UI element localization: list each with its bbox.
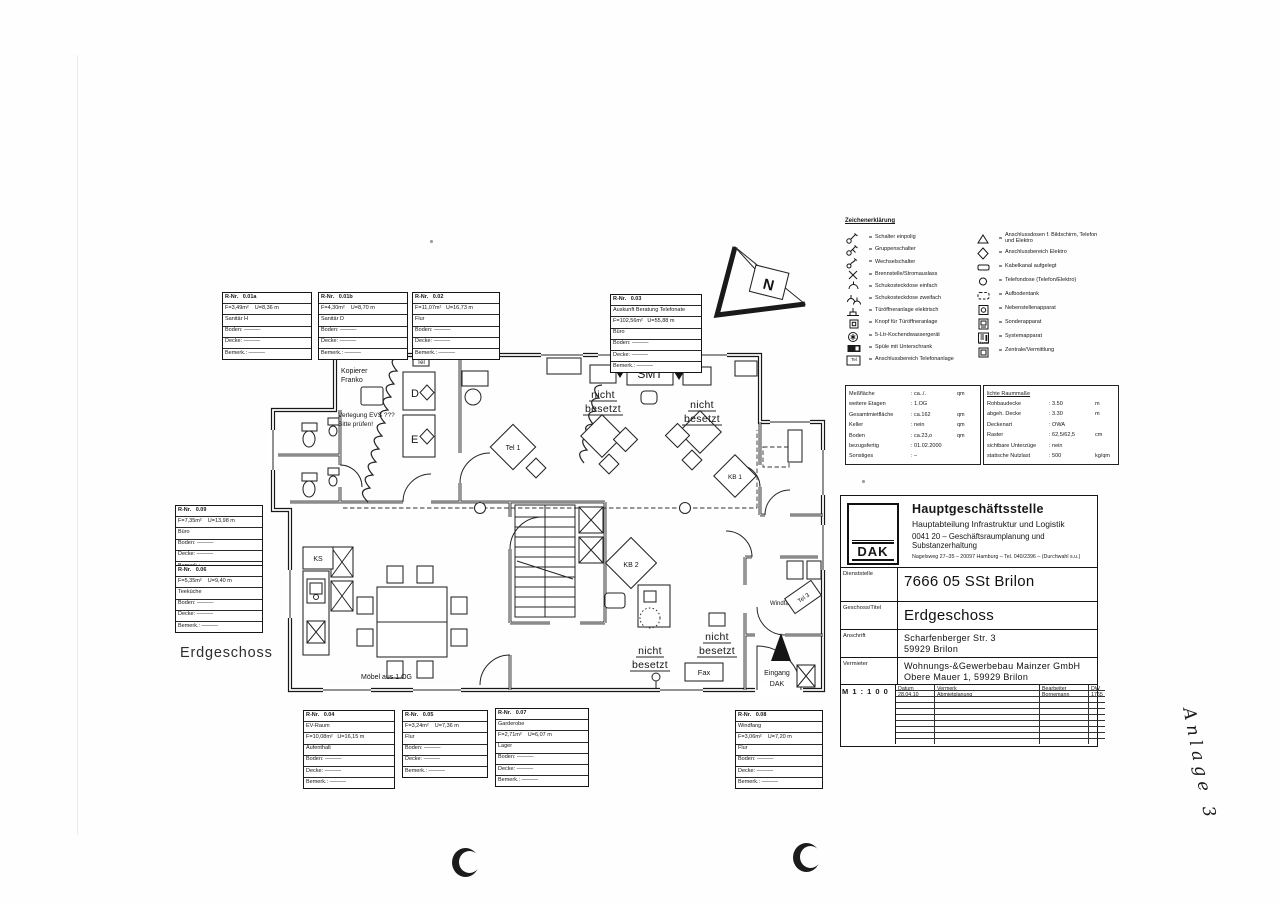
room-box-row: Decke: ——— xyxy=(319,338,407,349)
outer-walls xyxy=(273,355,823,690)
title-block: DAK Hauptgeschäftsstelle Hauptabteilung … xyxy=(840,495,1098,747)
paper-edge-artifact xyxy=(77,55,78,835)
room-box-row: Garderobe xyxy=(496,720,588,731)
org-address: Nagelsweg 27–35 – 20097 Hamburg – Tel. 0… xyxy=(912,554,1093,560)
field-label: Geschoss/Titel xyxy=(841,602,898,629)
room-box-row: Sanitär H xyxy=(223,315,311,326)
spec-tables: Meßfläche: ca../.qmweitere Etagen: 1.OGG… xyxy=(845,385,1119,465)
legend-item: =Anschlussdosen f. Bildschirm, Telefon u… xyxy=(975,232,1105,246)
legend-item-label: Aufbodentank xyxy=(1005,292,1039,298)
room-box-row: Boden: ——— xyxy=(176,540,262,551)
revision-table: Datum Vermerk Bearbeiter DW 28.04.10 Abm… xyxy=(896,685,1105,744)
tel1-desk: Tel 1 xyxy=(490,424,546,478)
room-box-row: Bemerk.: ——— xyxy=(319,349,407,359)
legend-column-left: =Schalter einpolig=Gruppenschalter=Wechs… xyxy=(845,232,975,366)
room-box-row: R-Nr. 0.05 xyxy=(403,711,487,722)
legend-item-label: Kabelkanal aufgelegt xyxy=(1005,264,1056,270)
room-box-row: Bemerk.: ——— xyxy=(611,362,701,372)
svg-text:besetzt: besetzt xyxy=(699,645,735,657)
spec-row: weitere Etagen: 1.OG xyxy=(849,399,977,409)
legend-item: =Kabelkanal aufgelegt xyxy=(975,260,1105,274)
connection-closets: Tel D E xyxy=(403,356,435,457)
nicht-besetzt-label: nicht besetzt xyxy=(630,645,670,671)
room-box-row: R-Nr. 0.01b xyxy=(319,293,407,304)
room-box-row: EV-Raum xyxy=(304,722,394,733)
landlord-value: Wohnungs-&Gewerbebau Mainzer GmbH Obere … xyxy=(898,658,1097,684)
spec-row: Deckenart: OWA xyxy=(987,420,1115,430)
room-box-row: Bemerk.: ——— xyxy=(403,767,487,777)
room-info-box: R-Nr. 0.07GarderobeF=2,71m² U=6,07 mLage… xyxy=(495,708,589,787)
room-box-row: Boden: ——— xyxy=(403,745,487,756)
room-box-row: R-Nr. 0.03 xyxy=(611,295,701,306)
svg-text:nicht: nicht xyxy=(591,389,615,401)
room-box-row: F=2,71m² U=6,07 m xyxy=(496,731,588,742)
room-box-row: Boden: ——— xyxy=(611,340,701,351)
legend-item: Zentr.=Zentrale/Vermittlung xyxy=(975,344,1105,358)
scan-speck xyxy=(862,480,865,483)
kb2-label: KB 2 xyxy=(623,562,638,569)
legend-item: =5-Ltr-Kochendwassergerät xyxy=(845,330,975,342)
room-dimension-spec-table: lichte RaummaßeRohbaudecke: 3.50mabgeh. … xyxy=(983,385,1119,465)
area-spec-table: Meßfläche: ca../.qmweitere Etagen: 1.OGG… xyxy=(845,385,981,465)
room-box-row: Flur xyxy=(736,745,822,756)
room-box-row: R-Nr. 0.07 xyxy=(496,709,588,720)
legend-item-label: Türöffneranlage elektrisch xyxy=(875,308,939,314)
legend-item-label: Schalter einpolig xyxy=(875,235,916,241)
address-value: Scharfenberger Str. 3 59929 Brilon xyxy=(898,630,1097,657)
special-phone-icon xyxy=(975,316,993,330)
room-box-row: Teeküche xyxy=(176,588,262,599)
room-info-box: R-Nr. 0.05F=3,24m² U=7,36 mFlurBoden: ——… xyxy=(402,710,488,778)
legend-item: =Gruppenschalter xyxy=(845,244,975,256)
legend-item: Tel=Anschlussbereich Telefonanlage xyxy=(845,354,975,366)
tel-marker: Tel xyxy=(417,360,425,366)
room-box-row: F=11,07m² U=16,73 m xyxy=(413,304,499,315)
floor-tank-icon xyxy=(975,288,993,302)
legend-item-label: Schukosteckdose zweifach xyxy=(875,296,941,302)
room-box-row: Windfang xyxy=(736,722,822,733)
legend-item: =Nebenstellenapparat xyxy=(975,302,1105,316)
room-box-row: Auskunft Beratung Telefonate xyxy=(611,306,701,317)
room-box-row: Boden: ——— xyxy=(413,327,499,338)
svg-text:Franko: Franko xyxy=(341,377,363,384)
furniture-note: Möbel aus 1.OG xyxy=(361,674,412,681)
phone-socket-icon xyxy=(975,274,993,288)
room-box-row: Decke: ——— xyxy=(611,351,701,362)
legend-item: =Telefondose (Telefon/Elektro) xyxy=(975,274,1105,288)
svg-text:besetzt: besetzt xyxy=(585,403,621,415)
kb1-desk: KB 1 xyxy=(714,455,756,497)
station-id: 7666 05 SSt Brilon xyxy=(898,568,1097,601)
room-box-row: Decke: ——— xyxy=(176,611,262,622)
room-box-row: Decke: ——— xyxy=(413,338,499,349)
legend-item-label: Sonderapparat xyxy=(1005,320,1041,326)
legend-item: =Sonderapparat xyxy=(975,316,1105,330)
copier-label: Kopierer xyxy=(341,368,368,375)
svg-text:DAK: DAK xyxy=(770,681,785,688)
room-box-row: F=4,30m² U=8,70 m xyxy=(319,304,407,315)
room-box-row: R-Nr. 0.08 xyxy=(736,711,822,722)
revision-row-empty xyxy=(896,739,1105,744)
room-box-row: R-Nr. 0.09 xyxy=(176,506,262,517)
svg-text:E: E xyxy=(411,434,418,446)
room-box-row: F=102,56m² U=55,88 m xyxy=(611,317,701,328)
room-box-row: Flur xyxy=(413,315,499,326)
room-box-row: Flur xyxy=(403,733,487,744)
kitchenette: KS xyxy=(303,547,333,655)
legend-item: =Brennstelle/Stromauslass xyxy=(845,269,975,281)
entrance-label: Eingang xyxy=(764,670,790,677)
spec-row: Raster: 62,5/62,5cm xyxy=(987,430,1115,440)
spec-row: abgeh. Decke: 3.30m xyxy=(987,409,1115,419)
scale-label: M 1 : 1 0 0 xyxy=(841,685,896,744)
room-box-row: F=7,35m² U=13,98 m xyxy=(176,517,262,528)
room-info-box: R-Nr. 0.06F=5,35m² U=9,40 mTeekücheBoden… xyxy=(175,565,263,633)
scanned-floorplan-page: Kopierer Franko Verlegung EVS ??? Bitte … xyxy=(0,0,1279,904)
svg-text:nicht: nicht xyxy=(705,631,729,643)
legend-column-right: =Anschlussdosen f. Bildschirm, Telefon u… xyxy=(975,232,1105,366)
room-info-box: R-Nr. 0.03Auskunft Beratung TelefonateF=… xyxy=(610,294,702,373)
spec-row: Boden: ca.23,oqm xyxy=(849,431,977,441)
conference-table: Möbel aus 1.OG xyxy=(357,566,467,681)
room-box-row: R-Nr. 0.06 xyxy=(176,566,262,577)
room-box-row: Bemerk.: ——— xyxy=(413,349,499,359)
legend-item: =Schalter einpolig xyxy=(845,232,975,244)
room-box-row: Decke: ——— xyxy=(403,756,487,767)
handwritten-annotation: Anlage 3 xyxy=(1178,706,1220,824)
room-box-row: Boden: ——— xyxy=(304,756,394,767)
room-box-row: Büro xyxy=(176,528,262,539)
spec-row: Gesamtmietfläche: ca.162qm xyxy=(849,410,977,420)
spec-row: Keller: neinqm xyxy=(849,420,977,430)
extension-phone-icon xyxy=(975,302,993,316)
svg-text:D: D xyxy=(411,388,419,400)
room-box-row: Boden: ——— xyxy=(496,754,588,765)
title-block-header: DAK Hauptgeschäftsstelle Hauptabteilung … xyxy=(841,496,1097,568)
legend-item-label: Anschlussbereich Telefonanlage xyxy=(875,357,954,363)
legend-item-label: Anschlussbereich Elektro xyxy=(1005,250,1067,256)
legend-item-label: Schukosteckdose einfach xyxy=(875,284,937,290)
sanitary-fixtures xyxy=(302,418,339,497)
spec-table-title: lichte Raummaße xyxy=(987,389,1115,399)
binder-ring-artifact xyxy=(793,843,820,872)
legend-item: =Aufbodentank xyxy=(975,288,1105,302)
org-name: Hauptgeschäftsstelle xyxy=(912,502,1093,516)
fax-label: Fax xyxy=(698,668,711,677)
entrance: Eingang DAK xyxy=(764,633,791,688)
room-box-row: Lager xyxy=(496,743,588,754)
room-box-row: Decke: ——— xyxy=(304,767,394,778)
org-department: Hauptabteilung Infrastruktur und Logisti… xyxy=(912,519,1093,529)
pbx-icon: Zentr. xyxy=(975,344,993,358)
field-label: Anschrift xyxy=(841,630,898,657)
room-info-box: R-Nr. 0.01bF=4,30m² U=8,70 mSanitär DBod… xyxy=(318,292,408,360)
interior-walls xyxy=(273,355,823,690)
room-box-row: Büro xyxy=(611,329,701,340)
room-box-row: Bemerk.: ——— xyxy=(223,349,311,359)
north-arrow: N xyxy=(717,247,805,315)
room-box-row: Decke: ——— xyxy=(223,338,311,349)
spec-row: bezugsfertig: 01.02.2000 xyxy=(849,441,977,451)
room-box-row: Boden: ——— xyxy=(736,756,822,767)
conn-triangle-icon xyxy=(975,232,993,246)
room-box-row: F=3,24m² U=7,36 m xyxy=(403,722,487,733)
svg-text:besetzt: besetzt xyxy=(632,659,668,671)
room-box-row: Boden: ——— xyxy=(176,600,262,611)
room-box-row: Bemerk.: ——— xyxy=(736,778,822,788)
legend-item: =Knopf für Türöffneranlage xyxy=(845,317,975,329)
room-box-row: Aufenthalt xyxy=(304,745,394,756)
room-info-box: R-Nr. 0.01aF=3,49m² U=8,36 mSanitär HBod… xyxy=(222,292,312,360)
svg-text:nicht: nicht xyxy=(690,399,714,411)
org-unit: 0041 20 – Geschäftsraumplanung und Subst… xyxy=(912,532,1093,550)
cabinets xyxy=(331,547,353,611)
cable-duct-icon xyxy=(975,260,993,274)
svg-text:nicht: nicht xyxy=(638,645,662,657)
room-box-row: Decke: ——— xyxy=(736,767,822,778)
legend-item-label: Systemapparat xyxy=(1005,334,1042,340)
legend-item: =Spüle mit Unterschrank xyxy=(845,342,975,354)
field-label: Vermieter xyxy=(841,658,898,684)
legend: Zeichenerklärung =Schalter einpolig=Grup… xyxy=(845,218,1107,366)
room-box-row: R-Nr. 0.02 xyxy=(413,293,499,304)
svg-text:Bitte prüfen!: Bitte prüfen! xyxy=(338,421,373,428)
floor-title: Erdgeschoss xyxy=(898,602,1097,629)
field-label: Dienststelle xyxy=(841,568,898,601)
room-box-row: Decke: ——— xyxy=(176,551,262,562)
nicht-besetzt-label: nicht besetzt xyxy=(697,631,737,657)
legend-item: =Schukosteckdose einfach xyxy=(845,281,975,293)
legend-item: =Anschlussbereich Elektro xyxy=(975,246,1105,260)
legend-item-label: Spüle mit Unterschrank xyxy=(875,345,932,351)
room-box-row: F=3,06m² U=7,20 m xyxy=(736,733,822,744)
room-box-row: R-Nr. 0.04 xyxy=(304,711,394,722)
room-info-box: R-Nr. 0.04EV-RaumF=10,08m² U=16,15 mAufe… xyxy=(303,710,395,789)
room-info-box: R-Nr. 0.08WindfangF=3,06m² U=7,20 mFlurB… xyxy=(735,710,823,789)
conn-diamond-icon xyxy=(975,246,993,260)
room-box-row: Bemerk.: ——— xyxy=(304,778,394,788)
kb1-label: KB 1 xyxy=(728,474,742,481)
room-box-row: Boden: ——— xyxy=(319,327,407,338)
nicht-besetzt-label: nicht besetzt xyxy=(682,399,722,425)
legend-item-label: Gruppenschalter xyxy=(875,247,916,253)
legend-item-label: Anschlussdosen f. Bildschirm, Telefon un… xyxy=(1005,233,1101,245)
spec-row: Meßfläche: ca../.qm xyxy=(849,389,977,399)
legend-item-label: Knopf für Türöffneranlage xyxy=(875,320,937,326)
room-box-row: Bemerk.: ——— xyxy=(496,776,588,786)
nicht-besetzt-label: nicht besetzt xyxy=(583,389,623,415)
tel-area-icon: Tel xyxy=(845,353,863,367)
legend-item-label: 5-Ltr-Kochendwassergerät xyxy=(875,333,940,339)
legend-title: Zeichenerklärung xyxy=(845,218,1107,224)
spec-row: Sonstiges: – xyxy=(849,451,977,461)
spec-row: Rohbaudecke: 3.50m xyxy=(987,399,1115,409)
legend-item: =Schukosteckdose zweifach xyxy=(845,293,975,305)
staircase xyxy=(515,505,603,617)
room-box-row: F=10,08m² U=16,15 m xyxy=(304,733,394,744)
relocation-note: Verlegung EVS ??? xyxy=(338,412,395,419)
legend-item: =Türöffneranlage elektrisch xyxy=(845,305,975,317)
room-box-row: F=5,35m² U=9,40 m xyxy=(176,577,262,588)
fridge-label: KS xyxy=(313,556,323,563)
dak-logo-text: DAK xyxy=(852,542,894,561)
svg-text:besetzt: besetzt xyxy=(684,413,720,425)
legend-item: =Wechselschalter xyxy=(845,256,975,268)
legend-item-label: Zentrale/Vermittlung xyxy=(1005,348,1054,354)
room-box-row: Sanitär D xyxy=(319,315,407,326)
binder-ring-artifact xyxy=(452,848,479,877)
room-box-row: F=3,49m² U=8,36 m xyxy=(223,304,311,315)
legend-item-label: Nebenstellenapparat xyxy=(1005,306,1056,312)
legend-item: =Systemapparat xyxy=(975,330,1105,344)
room-box-row: Bemerk.: ——— xyxy=(176,622,262,632)
tel1-label: Tel 1 xyxy=(506,445,521,452)
workstation-group xyxy=(581,415,638,474)
entrance-arrow-icon xyxy=(771,633,791,661)
room-info-box: R-Nr. 0.02F=11,07m² U=16,73 mFlurBoden: … xyxy=(412,292,500,360)
room-box-row: R-Nr. 0.01a xyxy=(223,293,311,304)
room-box-row: Boden: ——— xyxy=(223,327,311,338)
spec-row: sichtbare Unterzüge: nein xyxy=(987,441,1115,451)
spec-row: statische Nutzlast: 500kg/qm xyxy=(987,451,1115,461)
kb2-desk: KB 2 xyxy=(605,538,670,628)
floor-level-label: Erdgeschoss xyxy=(180,645,273,661)
room-box-row: Decke: ——— xyxy=(496,765,588,776)
dak-logo: DAK xyxy=(847,503,899,565)
room-info-box: R-Nr. 0.09F=7,35m² U=13,98 mBüroBoden: —… xyxy=(175,505,263,573)
legend-item-label: Telefondose (Telefon/Elektro) xyxy=(1005,278,1076,284)
legend-item-label: Wechselschalter xyxy=(875,260,915,266)
legend-item-label: Brennstelle/Stromauslass xyxy=(875,272,937,278)
